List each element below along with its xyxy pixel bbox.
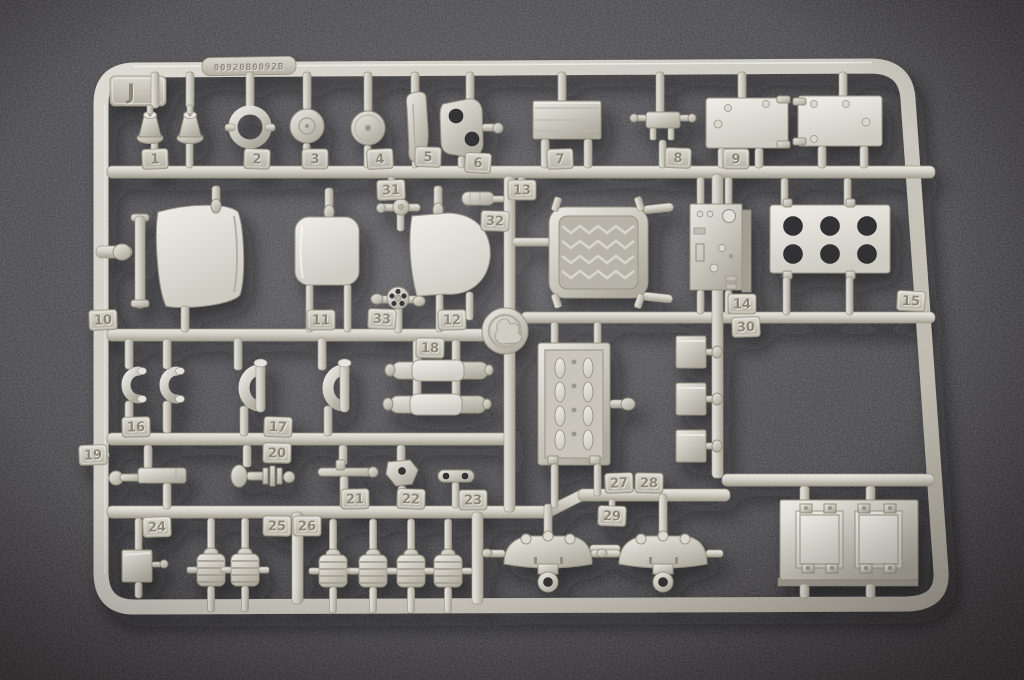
sprue-photo: J 00920B0092B [0,0,1024,680]
photo-vignette [0,0,1024,680]
